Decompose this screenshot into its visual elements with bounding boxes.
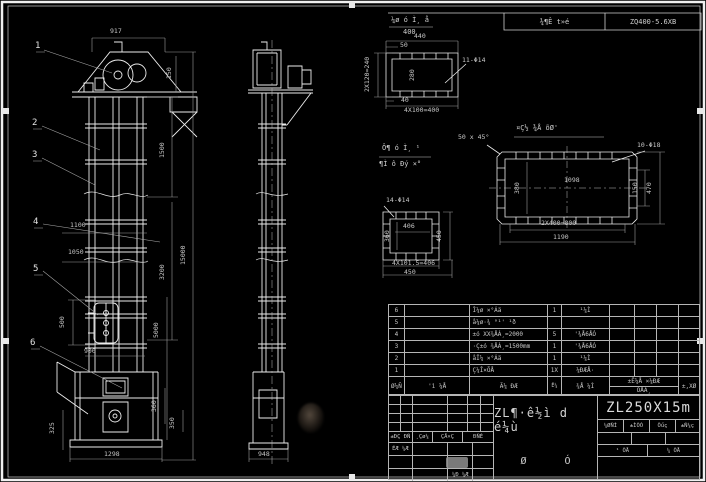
bom-extra: [657, 341, 679, 352]
bom-header-qty: Ê¼: [548, 377, 562, 395]
bom-qty: 1: [548, 305, 562, 316]
bom-extra: [635, 353, 657, 364]
bom-mat: ¼ÐÆÅ·: [562, 365, 610, 376]
bom-qty: 1X: [548, 365, 562, 376]
title-block-center: ZL¶·ê½ì d é¼ù Ø Ó: [494, 396, 598, 479]
sheet-count-total: ¹ ÕÅ: [598, 445, 648, 456]
bom-extra: [610, 317, 636, 328]
d1-dim-50: 50: [400, 42, 408, 49]
bom-code: [405, 353, 471, 364]
bom-extra: [635, 365, 657, 376]
bom-header-row: Ø¼Ñ 'ì ¼Å Ã¼ ÐÆ Ê¼ ¾Å ¼Ì ±Ê¼Å ×¼ÐÆ ÕÅÁ¸ …: [389, 377, 699, 395]
bom-name: Î¼ø ×°Áä: [470, 305, 548, 316]
balloon-1: 1: [35, 42, 40, 51]
bom-mat: '¾Å6ÅÓ: [562, 329, 610, 340]
title-block-revision-grid: ±ÐÇ ÐÑ ¸Çø¼ ÇÅ×Ç ÐÑÈ ÉÆ ¼Æ ¼Ð ¼Æ: [389, 396, 494, 479]
bom-code: [405, 365, 471, 376]
table-row: 3 ·Ç±ó ¾ÅÁ¸=1500mm 1 '¾Å6ÅÓ: [389, 341, 699, 353]
dim-325: 325: [49, 422, 56, 434]
bom-no: 2: [389, 353, 405, 364]
d2-dim-800: 2X400=800: [541, 220, 576, 227]
d1-dim-280: 280: [409, 69, 416, 81]
bom-extra: [657, 317, 679, 328]
dim-5000: 5000: [153, 322, 160, 338]
front-view-linework: [57, 42, 197, 447]
bom-extra: [657, 329, 679, 340]
bom-header-code: 'ì ¼Å: [405, 377, 471, 395]
scan-smudge-artifact: [298, 403, 324, 433]
dim-15000: 15000: [180, 245, 187, 265]
bom-name: ·Ç±ó ¾ÅÁ¸=1500mm: [470, 341, 548, 352]
bom-extra: [610, 305, 636, 316]
dim-900: 900: [84, 348, 96, 355]
bom-header-total-top: ±Ê¼Å ×¼ÐÆ: [610, 377, 679, 387]
bom-extra: [679, 329, 699, 340]
bom-header-total: ±Ê¼Å ×¼ÐÆ ÕÅÁ¸: [610, 377, 680, 395]
bom-qty: 5: [548, 329, 562, 340]
bom-code: [405, 329, 471, 340]
bom-header-no: Ø¼Ñ: [389, 377, 405, 395]
d2-holes-callout: 10-Φ18: [637, 142, 660, 149]
bom-code: [405, 305, 471, 316]
bom-header-total-bottom: ÕÅÁ¸: [610, 387, 679, 396]
drawing-subtitle: Ø Ó: [504, 456, 586, 467]
bom-extra: [679, 365, 699, 376]
dim-150: 150: [166, 67, 173, 79]
bom-mat: ¹¼Ì: [562, 353, 610, 364]
revision-header-4: ÐÑÈ: [463, 432, 493, 442]
bom-extra: [657, 365, 679, 376]
d2-dim-380: 380: [514, 182, 521, 194]
d1-dim-bottom: 4X100=400: [404, 107, 439, 114]
d1-dim-40: 40: [401, 97, 409, 104]
sheet-header-1: ¼ØÑÌ: [598, 420, 624, 432]
revision-header-1: ±ÐÇ ÐÑ: [389, 432, 413, 442]
d2-title: ¤Ç½ ¾Å õØ': [516, 124, 558, 132]
bom-name: åÎ¼ ×°Áä: [470, 353, 548, 364]
bom-extra: [610, 329, 636, 340]
bom-extra: [679, 305, 699, 316]
table-row: 5 å¼ø·¾ °¹' ¹ð: [389, 317, 699, 329]
table-row: 2 åÎ¼ ×°Áä 1 ¹¼Ì: [389, 353, 699, 365]
dim-350: 350: [169, 417, 176, 429]
bom-extra: [635, 317, 657, 328]
d2-chamfer-note: 50 x 45°: [458, 134, 489, 141]
dim-360: 360: [151, 400, 158, 412]
bom-header-mat: ¾Å ¼Ì: [562, 377, 610, 395]
approval-stamp: [446, 457, 468, 468]
signature-label-design: ÉÆ ¼Æ: [389, 443, 413, 455]
dim-948: 948: [258, 451, 270, 458]
revision-header-2: ¸Çø¼: [413, 432, 433, 442]
drawing-canvas[interactable]: ¼ø ó Ì¸ å 400 ¾¶Ê t»é ZQ400-5.6XB 1 2 3 …: [0, 0, 706, 482]
bom-extra: [679, 317, 699, 328]
table-row: 6 Î¼ø ×°Áä 1 ¹¼Ì: [389, 305, 699, 317]
bom-header-name: Ã¼ ÐÆ: [470, 377, 548, 395]
dim-1298: 1298: [104, 451, 120, 458]
bom-extra: [610, 353, 636, 364]
header-cell-model: ZQ400-5.6XB: [605, 13, 701, 30]
detail-square-flange: [383, 206, 453, 278]
dim-3200: 3200: [159, 264, 166, 280]
sheet-count-current: ¼ ÕÅ: [648, 445, 699, 456]
d3-dim-450-right: 450: [436, 230, 443, 242]
dim-1500: 1500: [159, 142, 166, 158]
d3-dim-bottom2: 450: [404, 269, 416, 276]
bom-code: [405, 317, 471, 328]
bom-extra: [679, 353, 699, 364]
dim-1100: 1100: [70, 222, 86, 229]
balloon-5: 5: [33, 265, 38, 274]
sheet-header-3: Õűç: [650, 420, 676, 432]
bom-extra: [679, 341, 699, 352]
signature-label-check: ¼Ð ¼Æ: [448, 469, 473, 481]
model-number: ZL250X15m: [606, 400, 691, 416]
d3-dim-360: 360: [384, 230, 391, 242]
d1-holes-callout: 11-Φ14: [462, 57, 485, 64]
bom-qty: 1: [548, 353, 562, 364]
bom-extra: [657, 305, 679, 316]
bom-code: [405, 341, 471, 352]
bom-name: ±ó XX¾ÅÁ¸=2000: [470, 329, 548, 340]
d2-dim-1190: 1190: [553, 234, 569, 241]
balloon-leaders: [31, 50, 160, 388]
bom-extra: [610, 341, 636, 352]
bom-table: 6 Î¼ø ×°Áä 1 ¹¼Ì 5 å¼ø·¾ °¹' ¹ð 4 ±ó XX¾…: [388, 304, 700, 395]
bom-mat: [562, 317, 610, 328]
bom-no: 5: [389, 317, 405, 328]
side-view-linework: [248, 42, 313, 449]
d2-dim-470: 470: [646, 182, 653, 194]
title-block-right: ZL250X15m ¼ØÑÌ ±ÌÒÓ Õűç ±Ñ¼ç ¹ ÕÅ ¼ ÕÅ: [598, 396, 699, 479]
bom-header-remark: ±,XØ: [679, 377, 699, 395]
bom-extra: [657, 353, 679, 364]
sheet-header-2: ±ÌÒÓ: [624, 420, 650, 432]
bom-qty: 1: [548, 341, 562, 352]
bom-extra: [635, 305, 657, 316]
bom-no: 1: [389, 365, 405, 376]
title-block: ±ÐÇ ÐÑ ¸Çø¼ ÇÅ×Ç ÐÑÈ ÉÆ ¼Æ ¼Ð ¼Æ: [388, 395, 700, 480]
sheet-header-4: ±Ñ¼ç: [676, 420, 699, 432]
bom-no: 4: [389, 329, 405, 340]
table-row: 1 Ç¼Î×ÕÅ 1X ¼ÐÆÅ·: [389, 365, 699, 377]
d1-dim-440: 440: [414, 33, 426, 40]
bom-name: å¼ø·¾ °¹' ¹ð: [470, 317, 548, 328]
dim-500: 500: [59, 316, 66, 328]
bom-mat: ¹¼Ì: [562, 305, 610, 316]
bom-name: Ç¼Î×ÕÅ: [470, 365, 548, 376]
d3-dim-bottom1: 4X101.5=406: [392, 260, 435, 267]
d3-holes-callout: 14-Φ14: [386, 197, 409, 204]
d1-dim-left: 2X120=240: [364, 57, 371, 92]
bom-extra: [635, 329, 657, 340]
bom-no: 3: [389, 341, 405, 352]
balloon-6: 6: [30, 339, 35, 348]
table-row: 4 ±ó XX¾ÅÁ¸=2000 5 '¾Å6ÅÓ: [389, 329, 699, 341]
bom-extra: [635, 341, 657, 352]
balloon-3: 3: [32, 151, 37, 160]
d2-dim-150: 150: [632, 182, 639, 194]
dim-917: 917: [110, 28, 122, 35]
sheet-note-numerator: ¼ø ó Ì¸ å: [391, 16, 429, 24]
d2-dim-1098: 1098: [564, 177, 580, 184]
revision-header-3: ÇÅ×Ç: [433, 432, 464, 442]
bom-mat: '¾Å6ÅÓ: [562, 341, 610, 352]
balloon-2: 2: [32, 119, 37, 128]
bom-qty: [548, 317, 562, 328]
bom-no: 6: [389, 305, 405, 316]
note-line1: Ô¶ ó Ì¸ ¹: [382, 144, 420, 152]
bom-extra: [610, 365, 636, 376]
dim-1050: 1050: [68, 249, 84, 256]
d3-dim-406: 406: [403, 223, 415, 230]
detail-top-flange: [374, 41, 466, 109]
balloon-4: 4: [33, 218, 38, 227]
note-line2: ¶Ì ô Ðý ×°: [379, 160, 421, 168]
header-cell-project: ¾¶Ê t»é: [504, 13, 605, 30]
drawing-title: ZL¶·ê½ì d é¼ù: [494, 406, 597, 434]
